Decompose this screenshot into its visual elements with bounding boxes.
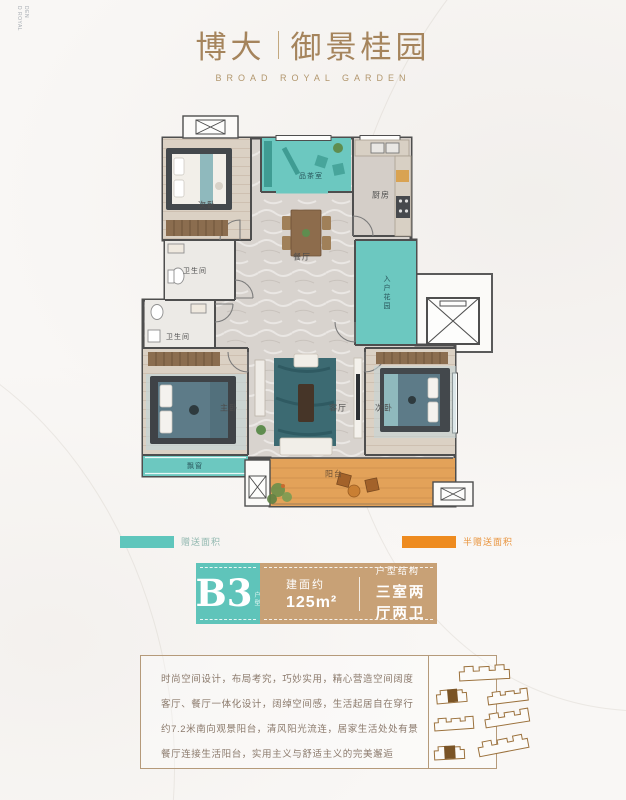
- legend-item-gift-area: 赠送面积: [120, 535, 221, 548]
- elevator-lobby: [416, 274, 492, 352]
- banner-dash-line: [200, 619, 256, 620]
- room-label-tea-room: 品茶室: [299, 171, 323, 181]
- half-gift-area-swatch: [402, 536, 456, 548]
- site-plan-sketch: [429, 656, 536, 768]
- ac-unit-icon: [183, 116, 238, 138]
- banner-dash-line: [200, 567, 256, 568]
- unit-layout: 户型结构 三室两厅两卫: [376, 564, 437, 623]
- brand-name-left: 博大: [196, 22, 266, 67]
- description-text: 时尚空间设计，布局考究，巧妙实用，精心营造空间阔度 客厅、餐厅一体化设计，阔绰空…: [141, 656, 428, 768]
- unit-area-label: 建面约: [286, 576, 337, 592]
- banner-dash-line: [264, 619, 433, 620]
- legend-item-half-gift-area: 半赠送面积: [402, 535, 513, 548]
- brand-subtitle: BROAD ROYAL GARDEN: [0, 73, 626, 83]
- description-box: 时尚空间设计，布局考究，巧妙实用，精心营造空间阔度 客厅、餐厅一体化设计，阔绰空…: [140, 655, 497, 769]
- brand-divider: [278, 31, 279, 59]
- unit-area-value: 125m²: [286, 594, 337, 612]
- room-label-bedroom-3: 次卧: [375, 403, 393, 414]
- banner-divider: [359, 577, 360, 611]
- room-label-bay-window: 飘窗: [187, 461, 203, 471]
- room-label-bedroom-2: 次卧: [198, 200, 216, 211]
- unit-banner: B3 户型 建面约 125m² 户型结构 三室两厅两卫: [196, 563, 437, 624]
- room-label-living-room: 客厅: [329, 403, 347, 414]
- brand-header: 博大 御景桂园 BROAD ROYAL GARDEN: [0, 22, 626, 83]
- unit-code-block: B3 户型: [196, 563, 260, 624]
- gift-area-label: 赠送面积: [181, 535, 221, 548]
- flyer-page: D ROYAL DEN 博大 御景桂园 BROAD ROYAL GARDEN: [0, 0, 626, 800]
- description-line: 客厅、餐厅一体化设计，阔绰空间感，生活起居自在穿行: [161, 692, 418, 717]
- ac-unit-icon: [433, 482, 473, 506]
- site-plan-panel: [428, 656, 536, 768]
- room-label-master-bedroom: 主卧: [220, 403, 238, 414]
- unit-info-block: 建面约 125m² 户型结构 三室两厅两卫: [260, 563, 437, 624]
- description-line: 餐厅连接生活阳台，实用主义与舒适主义的完美邂逅: [161, 742, 418, 767]
- description-line: 约7.2米南向观景阳台，清风阳光流连，居家生活处处有景: [161, 717, 418, 742]
- half-gift-area-label: 半赠送面积: [463, 535, 513, 548]
- unit-layout-value: 三室两厅两卫: [376, 581, 437, 623]
- brand-name-right: 御景桂园: [291, 22, 431, 67]
- room-label-balcony: 阳台: [325, 469, 343, 480]
- unit-area: 建面约 125m²: [286, 576, 337, 612]
- ac-unit-icon: [245, 460, 270, 506]
- banner-dash-line: [264, 567, 433, 568]
- balcony-floor: [270, 458, 455, 506]
- unit-code: B3: [195, 575, 252, 612]
- room-label-bathroom-2: 卫生间: [166, 332, 190, 342]
- room-label-entry-garden: 入户花园: [381, 275, 391, 311]
- bed-icon: [166, 148, 232, 236]
- description-line: 时尚空间设计，布局考究，巧妙实用，精心营造空间阔度: [161, 667, 418, 692]
- room-label-dining-room: 餐厅: [293, 252, 311, 263]
- floorplan-drawing: [88, 108, 498, 548]
- room-label-kitchen: 厨房: [372, 190, 390, 201]
- room-label-bathroom-1: 卫生间: [183, 266, 207, 276]
- floorplan: 次卧 品茶室 厨房 餐厅 卫生间 卫生间 入户花园 主卧 客厅 次卧 飘窗 阳台: [88, 108, 498, 548]
- unit-layout-label: 户型结构: [376, 564, 437, 577]
- gift-area-swatch: [120, 536, 174, 548]
